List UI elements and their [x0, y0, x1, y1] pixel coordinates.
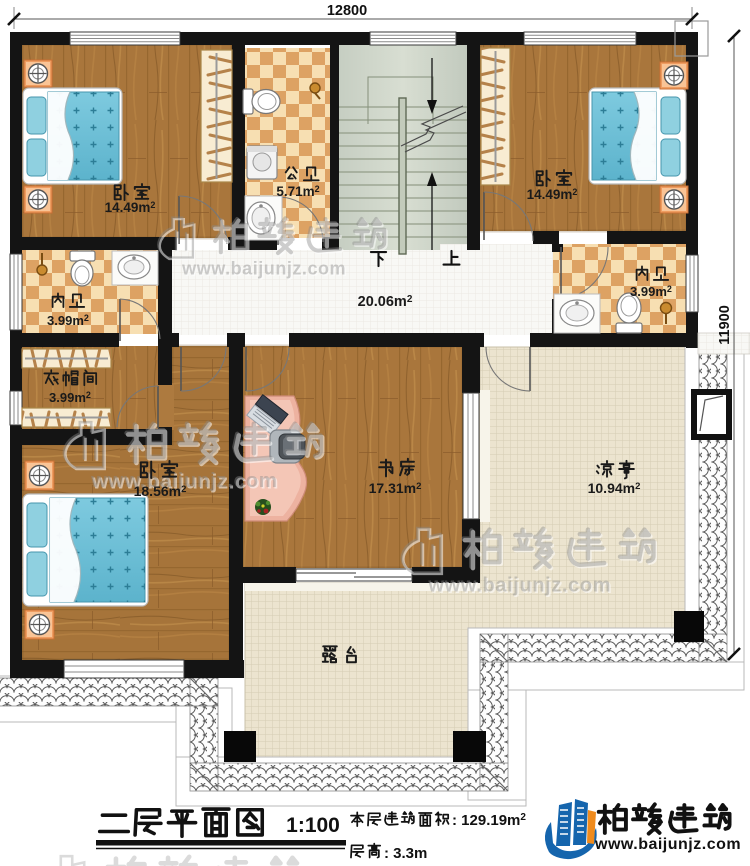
- svg-text:11900: 11900: [717, 305, 733, 345]
- svg-text:3.99m2: 3.99m2: [47, 313, 89, 328]
- svg-text:14.49m2: 14.49m2: [105, 200, 156, 215]
- svg-text:www.baijunjz.com: www.baijunjz.com: [594, 836, 741, 853]
- svg-text:20.06m2: 20.06m2: [358, 294, 413, 310]
- svg-text:17.31m2: 17.31m2: [369, 480, 422, 496]
- svg-text:10.94m2: 10.94m2: [588, 480, 641, 496]
- svg-text:1:100: 1:100: [286, 814, 340, 837]
- svg-text:: 3.3m: : 3.3m: [384, 845, 427, 862]
- svg-text:3.99m2: 3.99m2: [630, 284, 672, 299]
- svg-text:5.71m2: 5.71m2: [276, 184, 319, 199]
- svg-text:14.49m2: 14.49m2: [527, 187, 578, 202]
- svg-text:12800: 12800: [327, 3, 367, 19]
- svg-text:: 129.19m2: : 129.19m2: [452, 812, 526, 829]
- svg-text:3.99m2: 3.99m2: [49, 390, 91, 405]
- svg-text:18.56m2: 18.56m2: [134, 483, 187, 499]
